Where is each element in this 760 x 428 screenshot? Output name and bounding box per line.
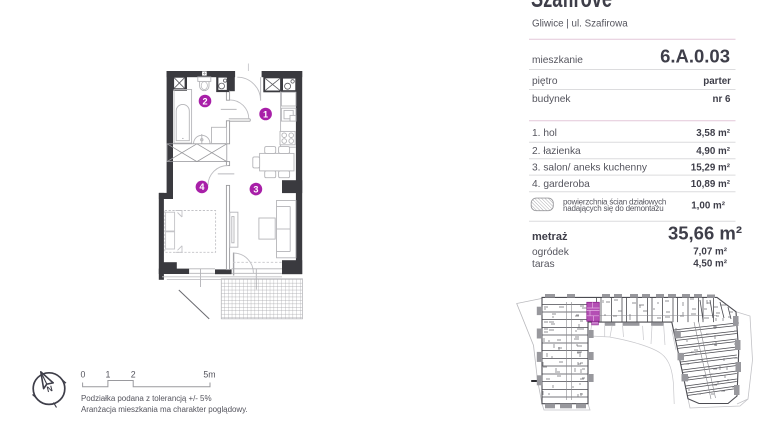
svg-text:15,29 m²: 15,29 m² [691, 163, 731, 174]
svg-text:metraż: metraż [532, 231, 568, 243]
svg-text:Szafirove: Szafirove [531, 0, 612, 13]
svg-text:budynek: budynek [532, 94, 571, 105]
svg-text:3,58 m²: 3,58 m² [696, 128, 731, 139]
svg-text:taras: taras [532, 259, 555, 270]
svg-text:Podziałka podana z tolerancją: Podziałka podana z tolerancją +/- 5% [81, 394, 212, 403]
svg-text:2: 2 [202, 96, 207, 106]
svg-text:6.A.0.03: 6.A.0.03 [660, 46, 730, 67]
svg-text:mieszkanie: mieszkanie [532, 55, 583, 66]
svg-text:Aranżacja mieszkania ma charak: Aranżacja mieszkania ma charakter pogląd… [81, 405, 248, 414]
svg-text:nr 6: nr 6 [713, 94, 732, 105]
svg-text:piętro: piętro [532, 76, 558, 87]
svg-text:1,00 m²: 1,00 m² [691, 200, 726, 211]
svg-text:Gliwice | ul. Szafirowa: Gliwice | ul. Szafirowa [532, 19, 628, 30]
svg-text:3: 3 [253, 184, 258, 194]
svg-text:10,89 m²: 10,89 m² [691, 179, 731, 190]
svg-text:parter: parter [703, 76, 731, 87]
svg-text:ogródek: ogródek [532, 247, 570, 258]
svg-text:3. salon/ aneks kuchenny: 3. salon/ aneks kuchenny [532, 163, 648, 174]
svg-text:4. garderoba: 4. garderoba [532, 179, 590, 190]
svg-text:0: 0 [81, 370, 86, 380]
svg-text:1: 1 [105, 370, 110, 380]
svg-text:4: 4 [199, 182, 205, 192]
svg-text:4,50 m²: 4,50 m² [693, 259, 728, 270]
svg-text:7,07 m²: 7,07 m² [693, 247, 728, 258]
svg-text:2: 2 [131, 370, 136, 380]
svg-text:N: N [46, 384, 54, 394]
svg-text:5m: 5m [203, 370, 215, 380]
svg-text:4,90 m²: 4,90 m² [696, 146, 731, 157]
svg-text:1: 1 [263, 109, 268, 119]
svg-text:35,66 m²: 35,66 m² [668, 223, 742, 244]
svg-text:nadających się do demontażu: nadających się do demontażu [563, 204, 663, 213]
svg-text:1. hol: 1. hol [532, 128, 557, 139]
svg-text:2. łazienka: 2. łazienka [532, 146, 581, 157]
